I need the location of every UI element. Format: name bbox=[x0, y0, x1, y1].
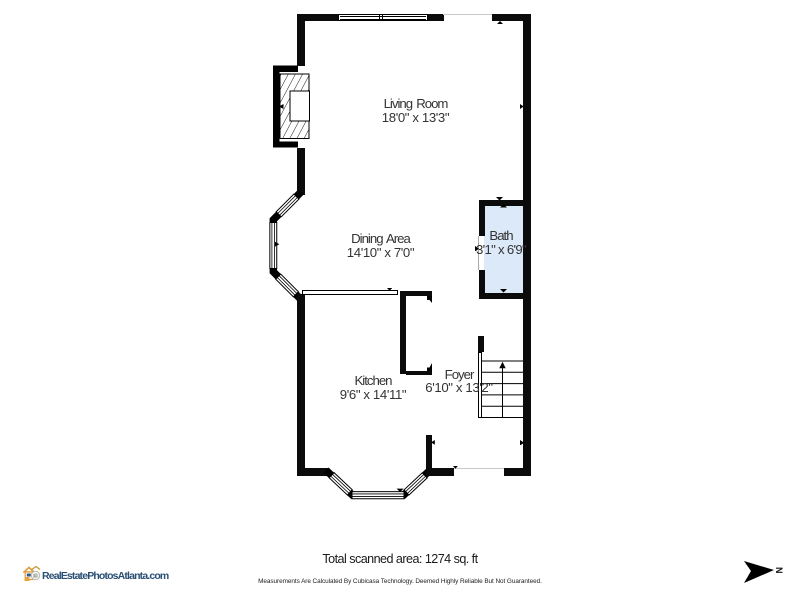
svg-text:30: 30 bbox=[33, 573, 39, 578]
svg-text:N: N bbox=[774, 567, 784, 574]
